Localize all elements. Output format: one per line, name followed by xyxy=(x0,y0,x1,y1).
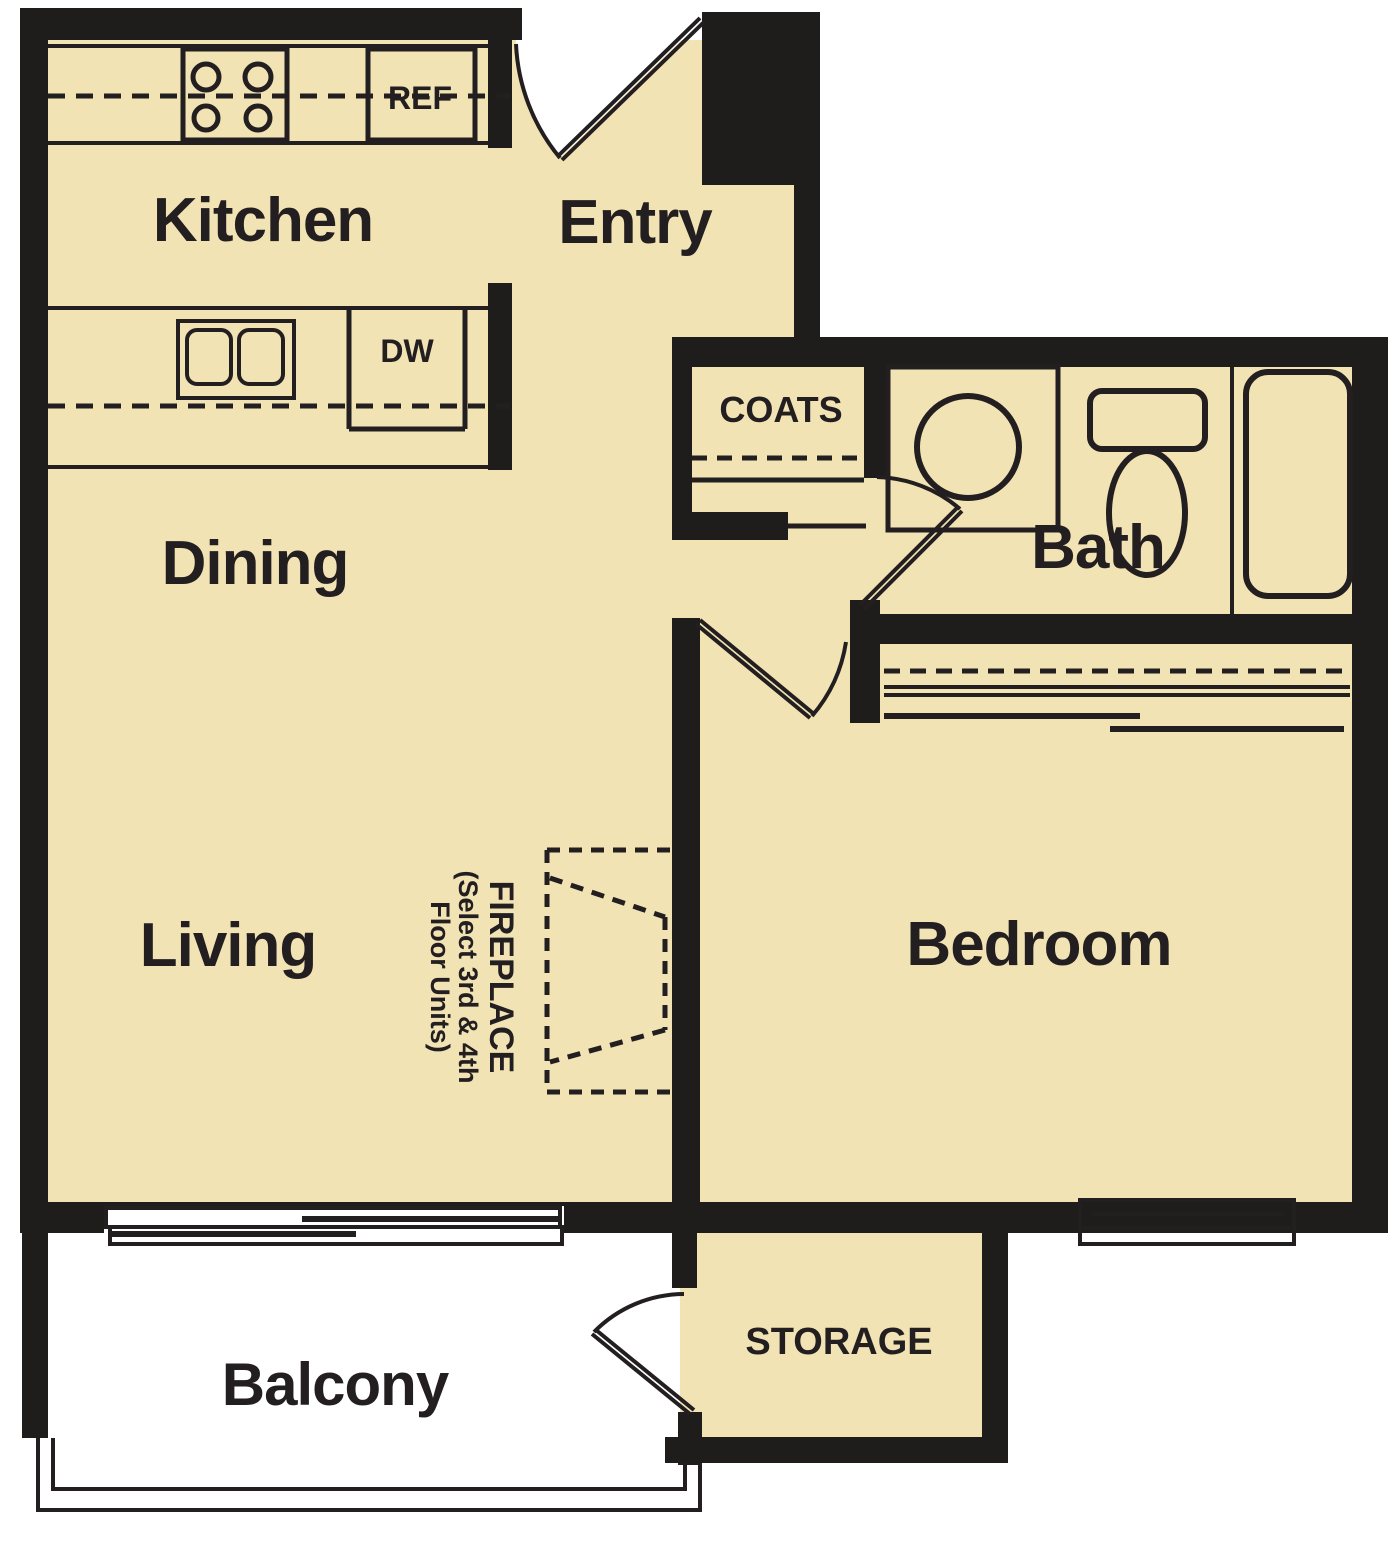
room-label-kitchen: Kitchen xyxy=(153,190,373,252)
room-label-bath: Bath xyxy=(1031,517,1165,579)
storage-door xyxy=(592,1294,694,1414)
wall-right-outer xyxy=(1352,337,1388,1233)
storage-door-leaf xyxy=(592,1330,694,1414)
fireplace-note-line2: (Select 3rd & 4th xyxy=(454,847,482,1107)
refrigerator-label: REF xyxy=(388,82,452,114)
railing-outer-line xyxy=(38,1438,700,1510)
wall-bath-top xyxy=(672,337,1388,367)
wall-balcony-left xyxy=(22,1233,48,1438)
wall-kitchen-upper-stub xyxy=(488,8,512,148)
wall-left-outer xyxy=(20,8,48,1233)
wall-closet-return xyxy=(850,600,880,723)
wall-storage-bottom xyxy=(665,1437,1008,1463)
room-label-living: Living xyxy=(140,915,317,977)
fireplace-note-title: FIREPLACE xyxy=(483,847,519,1107)
wall-storage-right xyxy=(982,1222,1008,1463)
floor-plan: Kitchen Entry Dining Living Bath Bedroom… xyxy=(0,0,1400,1542)
sliding-glass-door xyxy=(104,1206,564,1246)
wall-hall-right xyxy=(794,185,820,352)
wall-kitchen-lower-stub xyxy=(488,283,512,470)
room-label-dining: Dining xyxy=(162,533,349,595)
dishwasher-label: DW xyxy=(380,335,433,367)
balcony-railing xyxy=(38,1438,700,1510)
wall-storage-left-bottom-stub xyxy=(678,1412,702,1465)
room-label-coats: COATS xyxy=(719,392,842,428)
storage-door-arc xyxy=(594,1294,684,1332)
wall-coats-bottom xyxy=(672,512,788,540)
outside-top-right xyxy=(820,0,1400,337)
wall-storage-left-top-stub xyxy=(672,1233,697,1288)
wall-coats-right xyxy=(864,367,888,478)
wall-bedroom-top xyxy=(850,614,1388,644)
room-label-bedroom: Bedroom xyxy=(906,914,1171,976)
wall-living-bedroom-divider xyxy=(672,618,700,1233)
wall-entry-block xyxy=(702,12,820,185)
room-label-storage: STORAGE xyxy=(745,1323,932,1361)
room-label-balcony: Balcony xyxy=(222,1355,448,1415)
wall-top xyxy=(20,8,522,40)
room-label-entry: Entry xyxy=(558,192,711,254)
fireplace-note: FIREPLACE (Select 3rd & 4th Floor Units) xyxy=(426,847,518,1107)
fireplace-note-line3: Floor Units) xyxy=(426,847,454,1107)
railing-inner-line xyxy=(53,1438,685,1489)
